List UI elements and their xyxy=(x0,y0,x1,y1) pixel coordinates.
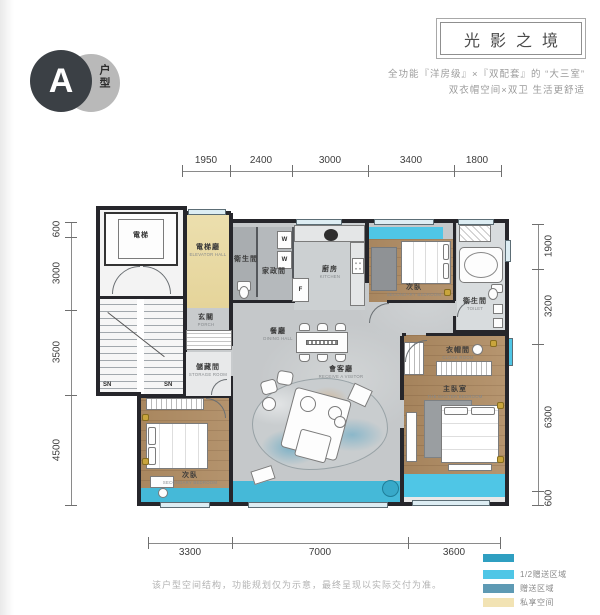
bathtub-basin xyxy=(464,252,498,278)
wall xyxy=(229,394,233,506)
wardrobe xyxy=(436,361,492,376)
chair xyxy=(299,354,310,362)
window xyxy=(505,240,511,262)
fridge-label: F xyxy=(299,287,303,293)
floorplan-page: A 户型 光影之境 全功能『洋房级』×『双配套』的 “大三室” 双衣帽空间×双卫… xyxy=(0,0,600,615)
unit-type-label: 户型 xyxy=(96,64,112,90)
wall xyxy=(96,206,100,396)
dim-tick xyxy=(65,310,77,311)
window xyxy=(188,209,226,215)
room-label-porch: 玄關 PORCH xyxy=(196,314,216,328)
basin xyxy=(493,304,503,314)
legend-accent-bar xyxy=(483,554,514,562)
dim-right-3: 6300 xyxy=(544,395,555,439)
page-title: 光影之境 xyxy=(440,22,582,55)
legend-label: 赠送区域 xyxy=(520,583,554,594)
legend-label: 1/2赠送区域 xyxy=(520,569,567,580)
stove xyxy=(352,258,364,274)
basin xyxy=(493,318,503,328)
room-label-bath2: 衛生間 TOILET xyxy=(463,298,487,312)
dim-top-3: 3000 xyxy=(319,155,341,166)
pillow xyxy=(443,263,449,279)
lamp-icon xyxy=(142,458,149,465)
wall xyxy=(233,300,295,303)
unit-letter: A xyxy=(49,62,74,101)
washer-label: W xyxy=(282,237,288,243)
wall xyxy=(96,392,141,396)
left-gradient-band xyxy=(0,0,14,615)
dim-tick xyxy=(368,165,369,177)
lamp-icon xyxy=(490,340,497,347)
side-table xyxy=(300,396,316,412)
dim-tick xyxy=(230,165,231,177)
kitchen-counter-side xyxy=(350,242,365,306)
dim-tick xyxy=(232,537,233,549)
window xyxy=(412,500,490,506)
room-label-cloak: 衣帽間 CLOAK ROOM xyxy=(440,347,477,361)
wall xyxy=(365,221,369,283)
window xyxy=(248,502,388,508)
pillow xyxy=(471,407,495,415)
dim-tick xyxy=(500,537,501,549)
legend-item: 1/2赠送区域 xyxy=(483,569,567,580)
dim-line-right xyxy=(538,224,539,505)
dim-tick xyxy=(292,165,293,177)
zone-gift-bedroom-bl xyxy=(141,488,229,502)
wall xyxy=(137,394,141,506)
wall xyxy=(229,213,233,310)
chair xyxy=(299,323,310,331)
stair-mark-left: SN xyxy=(103,382,111,388)
dim-tick xyxy=(65,222,77,223)
wall xyxy=(96,296,183,299)
wall xyxy=(426,333,505,336)
lamp-icon xyxy=(497,402,504,409)
dim-top-5: 1800 xyxy=(466,155,488,166)
dim-tick xyxy=(65,505,77,506)
disclaimer-text: 该户型空间结构，功能规划仅为示意，最终呈现以实际交付为准。 xyxy=(152,578,442,591)
plant-icon xyxy=(382,480,399,497)
room-label-elevator: 電梯 xyxy=(133,232,149,240)
dim-left-4: 4500 xyxy=(52,428,63,472)
legend-item: 私享空间 xyxy=(483,597,554,608)
dim-tick xyxy=(408,537,409,549)
pillow xyxy=(148,427,156,445)
window xyxy=(160,502,210,508)
legend-swatch-half-gift xyxy=(483,570,514,579)
zone-gift-living xyxy=(233,481,400,502)
wall xyxy=(400,428,404,506)
elevator-hall-private xyxy=(185,213,231,308)
dim-tick xyxy=(65,395,77,396)
pillow xyxy=(444,407,468,415)
room-label-dining: 餐廳 DINING HALL xyxy=(261,328,296,342)
window xyxy=(374,219,434,225)
table-runner xyxy=(306,340,338,345)
room-label-wc1: 衛生間 xyxy=(234,256,258,264)
dim-bottom-2: 7000 xyxy=(309,547,331,558)
bed-bench xyxy=(448,464,492,471)
dim-left-3: 3500 xyxy=(52,330,63,374)
stairs-center-gap xyxy=(137,298,144,394)
subtitle-line-1: 全功能『洋房级』×『双配套』的 “大三室” xyxy=(388,66,585,80)
wardrobe xyxy=(146,398,204,410)
pillow xyxy=(148,447,156,465)
room-label-living: 會客廳 RECEIVE A VISITOR xyxy=(315,366,368,380)
dim-line-left xyxy=(71,222,72,505)
kitchen-sink xyxy=(324,229,338,241)
lamp-icon xyxy=(142,414,149,421)
dim-top-1: 1950 xyxy=(195,155,217,166)
vanity xyxy=(459,225,491,242)
dim-left-1: 600 xyxy=(52,207,63,251)
dim-top-4: 3400 xyxy=(400,155,422,166)
chair xyxy=(317,323,328,331)
dim-tick xyxy=(532,269,544,270)
dim-right-2: 3200 xyxy=(544,284,555,328)
dim-bottom-3: 3600 xyxy=(443,547,465,558)
room-label-kitchen: 廚房 KITCHEN xyxy=(318,266,342,280)
side-table xyxy=(334,416,346,428)
washer: W xyxy=(277,251,292,269)
subtitle-line-2: 双衣帽空间×双卫 生活更舒适 xyxy=(449,82,585,96)
side-table xyxy=(262,397,276,411)
chair xyxy=(317,354,328,362)
dim-tick xyxy=(65,237,77,238)
zone-half-gift-master xyxy=(404,474,505,497)
tv-cabinet xyxy=(406,412,417,462)
toilet-icon xyxy=(239,286,249,299)
dim-tick xyxy=(148,537,149,549)
zone-half-gift-top xyxy=(369,227,443,239)
wall xyxy=(453,221,456,301)
dim-top-2: 2400 xyxy=(250,155,272,166)
title-box: 光影之境 xyxy=(436,18,586,59)
room-label-storage: 儲藏間 STORAGE ROOM xyxy=(186,364,231,378)
desk-chair xyxy=(158,488,168,498)
room-label-bedroom-top: 次臥 SECONDARY BEDROOM xyxy=(382,284,446,298)
room-label-master: 主臥室 THE MASTER BEDROOM xyxy=(423,386,488,400)
chair xyxy=(335,323,346,331)
dim-right-4: 600 xyxy=(544,476,555,520)
armchair xyxy=(276,370,294,387)
washer: W xyxy=(277,231,292,249)
lamp-icon xyxy=(497,456,504,463)
room-label-elevator-hall: 電梯廳 ELEVATOR HALL xyxy=(186,244,230,258)
dim-tick xyxy=(182,165,183,177)
shoe-cabinet xyxy=(186,330,232,350)
wall xyxy=(387,300,455,303)
dim-tick xyxy=(501,165,502,177)
room-label-bedroom-bl: 次臥 SECONDARY BEDROOM xyxy=(158,472,222,486)
wall xyxy=(96,206,183,210)
dim-right-1: 1900 xyxy=(544,224,555,268)
legend-swatch-private xyxy=(483,598,514,607)
wall xyxy=(505,219,509,506)
legend-swatch-gift xyxy=(483,584,514,593)
toilet-icon xyxy=(488,288,498,300)
washer-label: W xyxy=(282,257,288,263)
legend-item: 赠送区域 xyxy=(483,583,554,594)
room-label-housekeeping: 家政間 xyxy=(262,268,286,276)
dim-line-bottom xyxy=(148,543,500,544)
fridge: F xyxy=(292,278,309,302)
dim-tick xyxy=(532,344,544,345)
dim-tick xyxy=(532,491,544,492)
chair xyxy=(335,354,346,362)
dim-tick xyxy=(532,505,544,506)
unit-badge: A xyxy=(30,50,92,112)
legend-label: 私享空间 xyxy=(520,597,554,608)
dim-left-2: 3000 xyxy=(52,251,63,295)
stair-mark-right: SN xyxy=(164,382,172,388)
dim-tick xyxy=(532,224,544,225)
dim-tick xyxy=(454,165,455,177)
dim-bottom-1: 3300 xyxy=(179,547,201,558)
pillow xyxy=(443,244,449,260)
